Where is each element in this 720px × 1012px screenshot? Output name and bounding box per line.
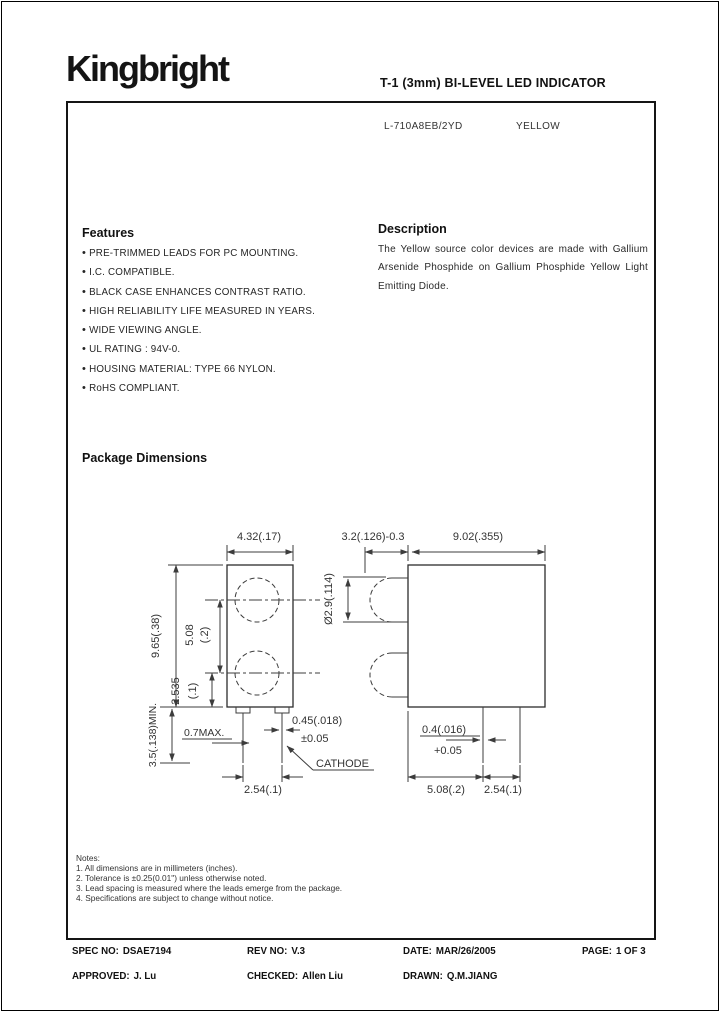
dim-label: 2.54(.1) xyxy=(244,784,282,796)
dim-label: 9.65(.38) xyxy=(150,614,162,658)
extension-line xyxy=(408,711,520,782)
dim-label: 0.4(.016) xyxy=(422,724,466,736)
dim-label: 2.535 xyxy=(170,677,182,705)
dim-label: 4.32(.17) xyxy=(237,531,281,543)
description-text: The Yellow source color devices are made… xyxy=(378,241,648,296)
lens-profile-bottom xyxy=(370,653,392,697)
standoff-tab xyxy=(275,707,289,713)
note-item: 4. Specifications are subject to change … xyxy=(76,894,342,904)
dim-label: 5.08 xyxy=(184,624,196,645)
dim-label: (.2) xyxy=(199,627,211,644)
feature-item: HOUSING MATERIAL: TYPE 66 NYLON. xyxy=(82,360,372,379)
feature-item: WIDE VIEWING ANGLE. xyxy=(82,321,372,340)
feature-item: PRE-TRIMMED LEADS FOR PC MOUNTING. xyxy=(82,244,372,263)
part-color: YELLOW xyxy=(516,121,560,132)
lens-profile-top xyxy=(370,578,392,622)
feature-item: RoHS COMPLIANT. xyxy=(82,379,372,398)
dim-label: 5.08(.2) xyxy=(427,784,465,796)
dim-label: 3.2(.126)-0.3 xyxy=(342,531,405,543)
feature-item: UL RATING : 94V-0. xyxy=(82,340,372,359)
features-heading: Features xyxy=(82,226,134,240)
footer-date: DATE:MAR/26/2005 xyxy=(403,946,496,957)
features-list: PRE-TRIMMED LEADS FOR PC MOUNTING. I.C. … xyxy=(82,244,372,398)
footer-rev-no: REV NO:V.3 xyxy=(247,946,305,957)
dim-label: 2.54(.1) xyxy=(484,784,522,796)
footer-page: PAGE:1 OF 3 xyxy=(582,946,646,957)
dim-label: 0.45(.018) xyxy=(292,715,342,727)
part-number: L-710A8EB/2YD xyxy=(384,121,463,132)
page-title: T-1 (3mm) BI-LEVEL LED INDICATOR xyxy=(380,76,606,90)
extension-line xyxy=(227,545,293,561)
dim-label: Ø2.9(.114) xyxy=(323,573,335,625)
dim-label: 3.5(.138)MIN. xyxy=(147,703,159,767)
feature-item: BLACK CASE ENHANCES CONTRAST RATIO. xyxy=(82,283,372,302)
dim-label: +0.05 xyxy=(434,745,462,757)
kingbright-logo: Kingbright xyxy=(66,48,228,90)
feature-item: HIGH RELIABILITY LIFE MEASURED IN YEARS. xyxy=(82,302,372,321)
notes: Notes: 1. All dimensions are in millimet… xyxy=(76,854,342,904)
description-heading: Description xyxy=(378,222,447,236)
led-case-side xyxy=(408,565,545,707)
lens-connector xyxy=(392,578,408,622)
package-dimensions-drawing: 4.32(.17) 9.65(.38) 5.08 (.2) 2.535 (.1)… xyxy=(60,495,660,825)
footer-checked: CHECKED:Allen Liu xyxy=(247,971,343,982)
footer-spec-no: SPEC NO:DSAE7194 xyxy=(72,946,171,957)
dim-label: ±0.05 xyxy=(301,733,328,745)
lens-connector xyxy=(392,653,408,697)
footer-drawn: DRAWN:Q.M.JIANG xyxy=(403,971,497,982)
led-case-front xyxy=(227,565,293,707)
dim-label: 9.02(.355) xyxy=(453,531,503,543)
leader-arrow xyxy=(287,746,313,770)
package-dimensions-heading: Package Dimensions xyxy=(82,451,207,465)
dim-label: 0.7MAX. xyxy=(184,727,224,739)
standoff-tab xyxy=(236,707,250,713)
extension-line xyxy=(343,577,406,622)
dim-label: (.1) xyxy=(187,683,199,700)
extension-line xyxy=(365,545,545,573)
footer-approved: APPROVED:J. Lu xyxy=(72,971,156,982)
feature-item: I.C. COMPATIBLE. xyxy=(82,263,372,282)
extension-line xyxy=(243,765,282,782)
cathode-label: CATHODE xyxy=(316,758,369,770)
